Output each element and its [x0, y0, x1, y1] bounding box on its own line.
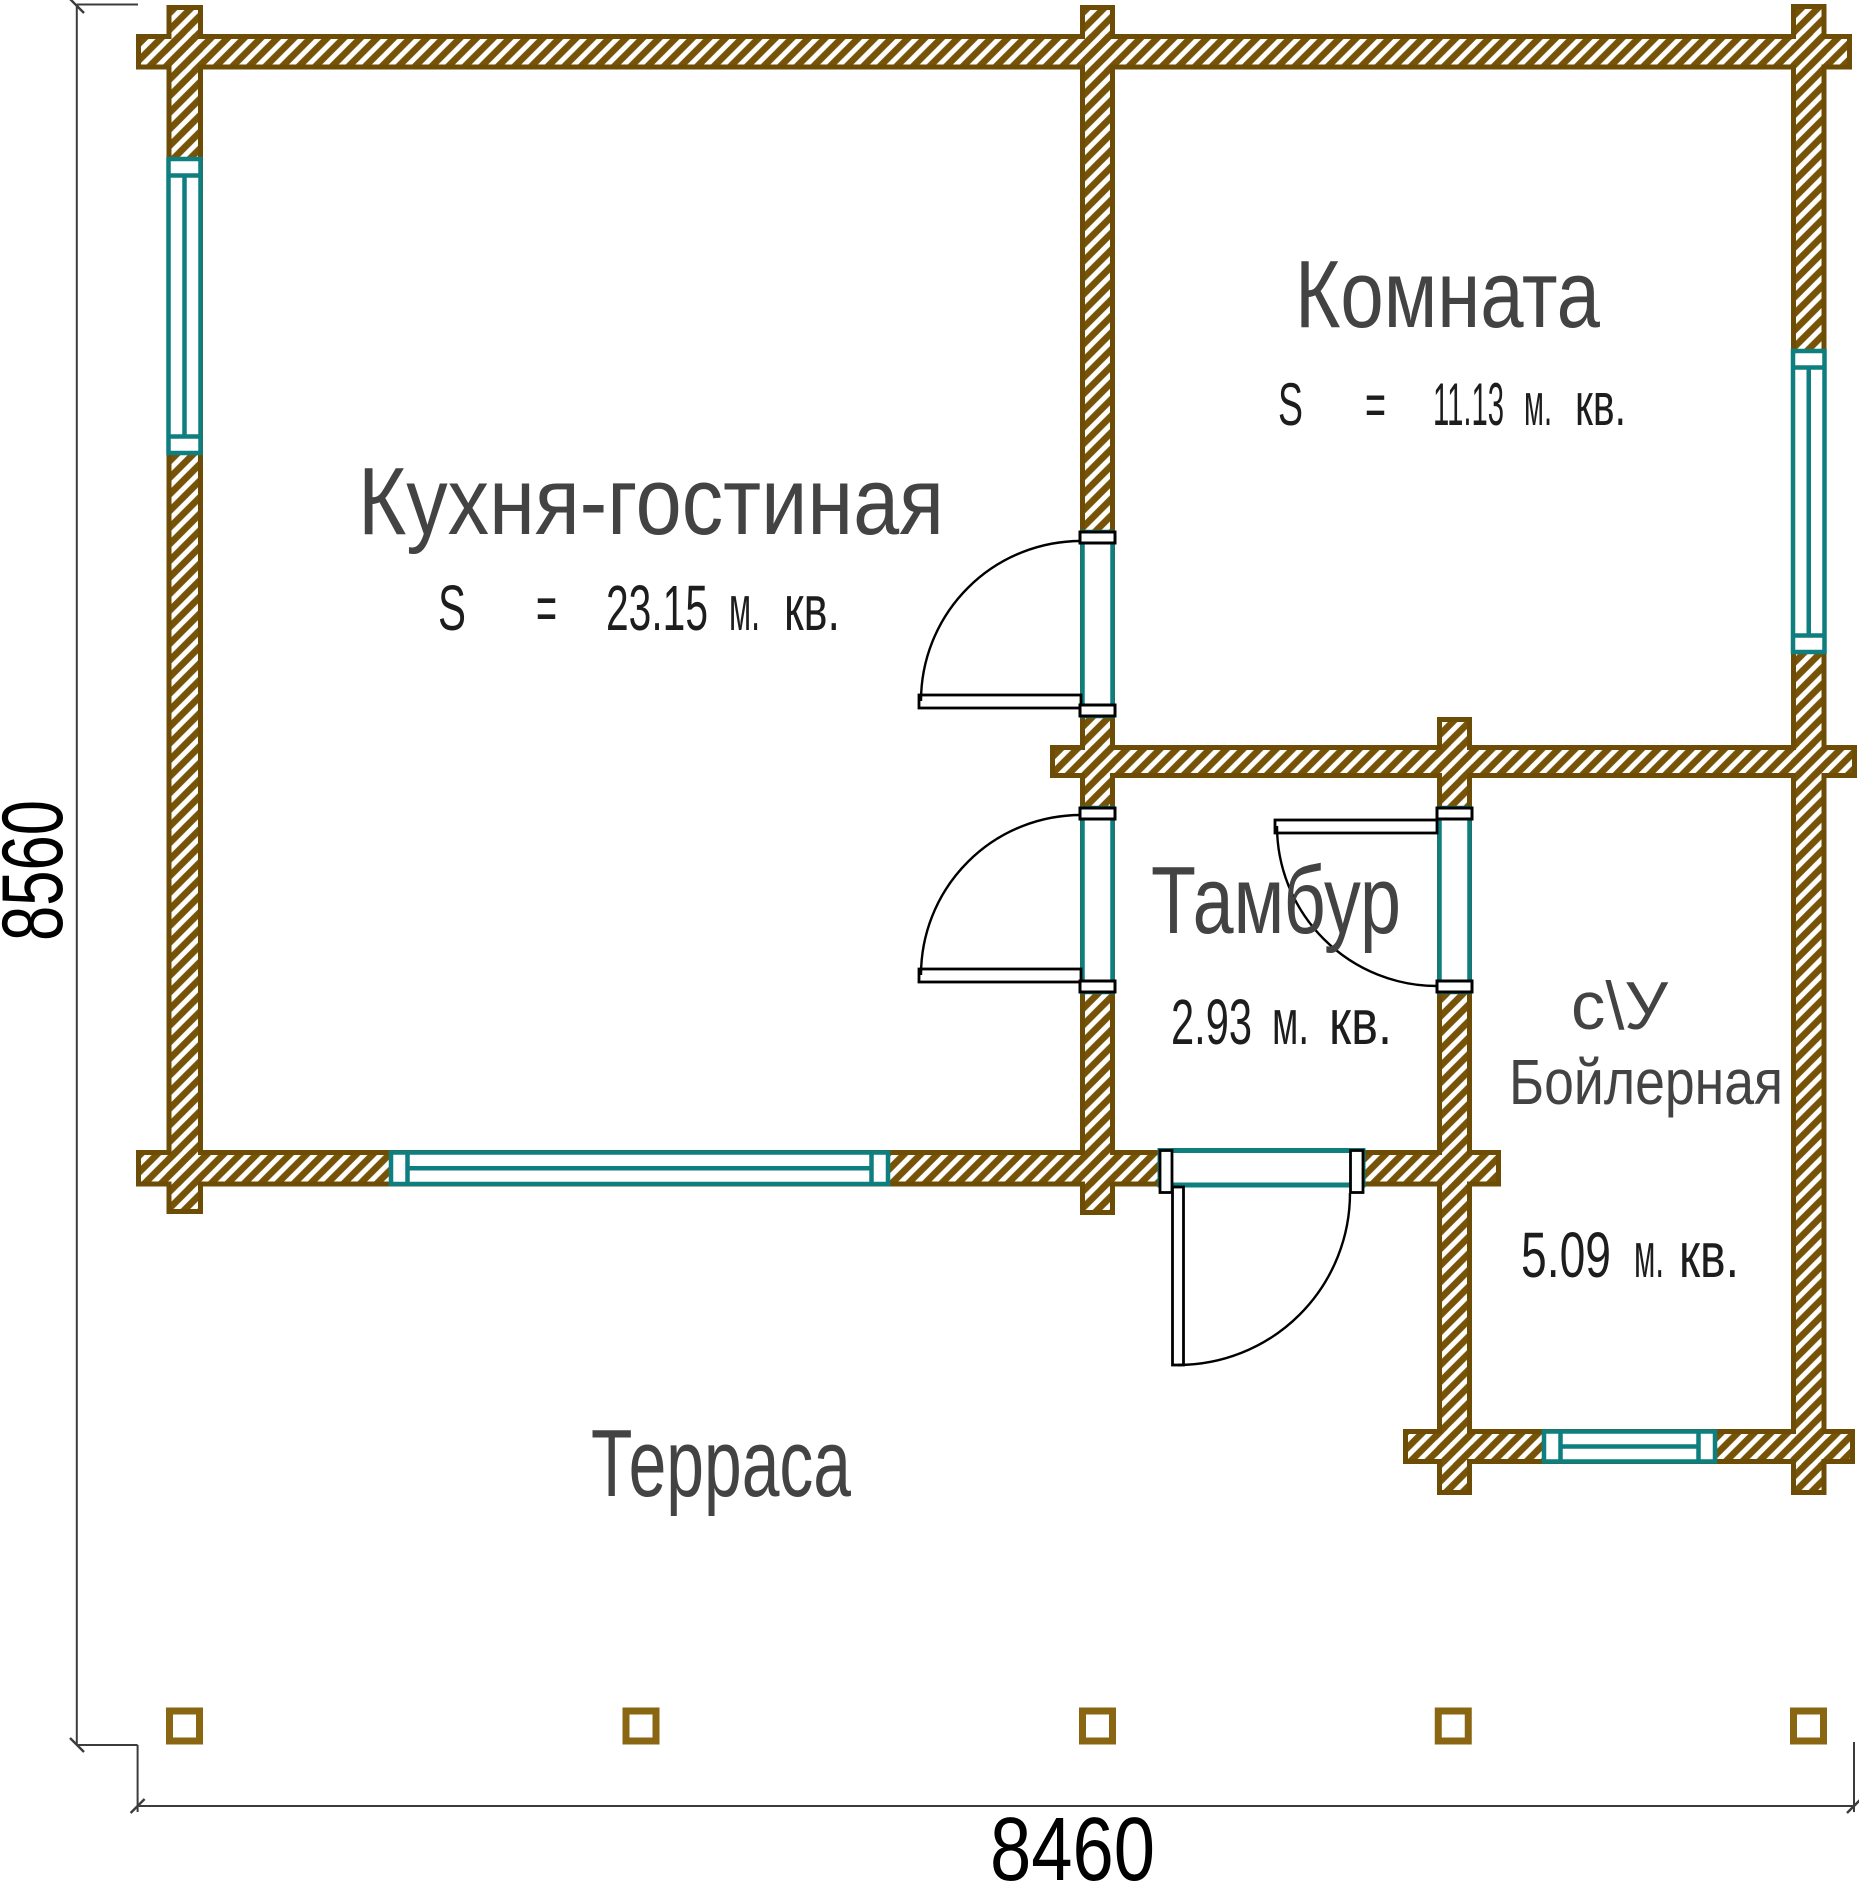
- svg-text:=: =: [1365, 371, 1386, 438]
- svg-text:м.: м.: [1524, 371, 1552, 438]
- svg-text:кв.: кв.: [784, 572, 840, 644]
- svg-text:Тамбур: Тамбур: [1151, 847, 1401, 954]
- svg-text:S: S: [438, 572, 466, 644]
- svg-text:Бойлерная: Бойлерная: [1509, 1046, 1783, 1118]
- svg-text:S: S: [1278, 371, 1303, 438]
- svg-text:м.: м.: [1272, 986, 1309, 1058]
- svg-text:м.: м.: [1634, 1219, 1664, 1291]
- svg-text:23.15: 23.15: [606, 572, 708, 644]
- svg-text:11.13: 11.13: [1433, 371, 1504, 438]
- svg-text:Кухня-гостиная: Кухня-гостиная: [358, 448, 944, 555]
- svg-text:8460: 8460: [990, 1800, 1155, 1882]
- svg-text:Комната: Комната: [1295, 241, 1600, 348]
- svg-text:кв.: кв.: [1329, 986, 1392, 1058]
- svg-text:8560: 8560: [0, 800, 81, 941]
- svg-text:кв.: кв.: [1575, 371, 1626, 438]
- svg-text:с\У: с\У: [1571, 968, 1669, 1044]
- svg-text:Терраса: Терраса: [591, 1410, 851, 1517]
- svg-text:=: =: [536, 572, 557, 644]
- svg-text:5.09: 5.09: [1521, 1219, 1611, 1291]
- svg-text:кв.: кв.: [1679, 1219, 1739, 1291]
- svg-text:м.: м.: [729, 572, 760, 644]
- svg-text:2.93: 2.93: [1171, 986, 1252, 1058]
